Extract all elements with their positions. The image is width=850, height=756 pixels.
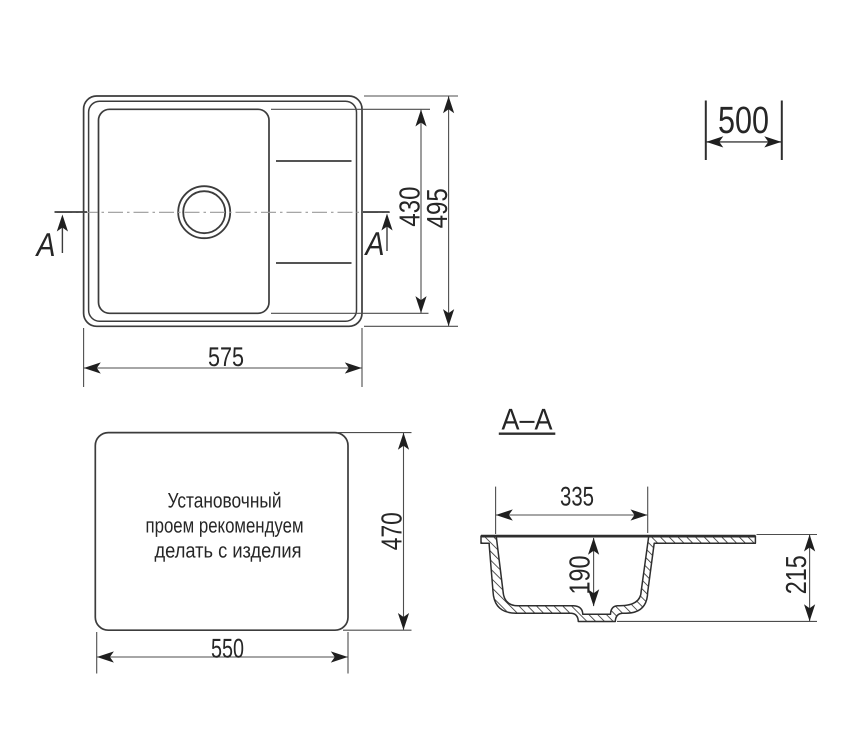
svg-text:A: A: [35, 226, 56, 263]
svg-text:215: 215: [781, 555, 813, 594]
svg-text:190: 190: [565, 556, 597, 595]
svg-text:делать с изделия: делать с изделия: [155, 540, 302, 563]
svg-text:Установочный: Установочный: [168, 490, 282, 513]
svg-text:проем рекомендуем: проем рекомендуем: [146, 515, 304, 538]
svg-text:A–A: A–A: [502, 404, 553, 437]
svg-text:575: 575: [208, 342, 244, 372]
svg-text:A: A: [364, 225, 385, 262]
svg-text:495: 495: [422, 188, 454, 228]
svg-text:500: 500: [718, 100, 769, 142]
svg-text:550: 550: [211, 634, 244, 664]
svg-text:470: 470: [377, 512, 409, 550]
svg-text:335: 335: [560, 482, 594, 512]
